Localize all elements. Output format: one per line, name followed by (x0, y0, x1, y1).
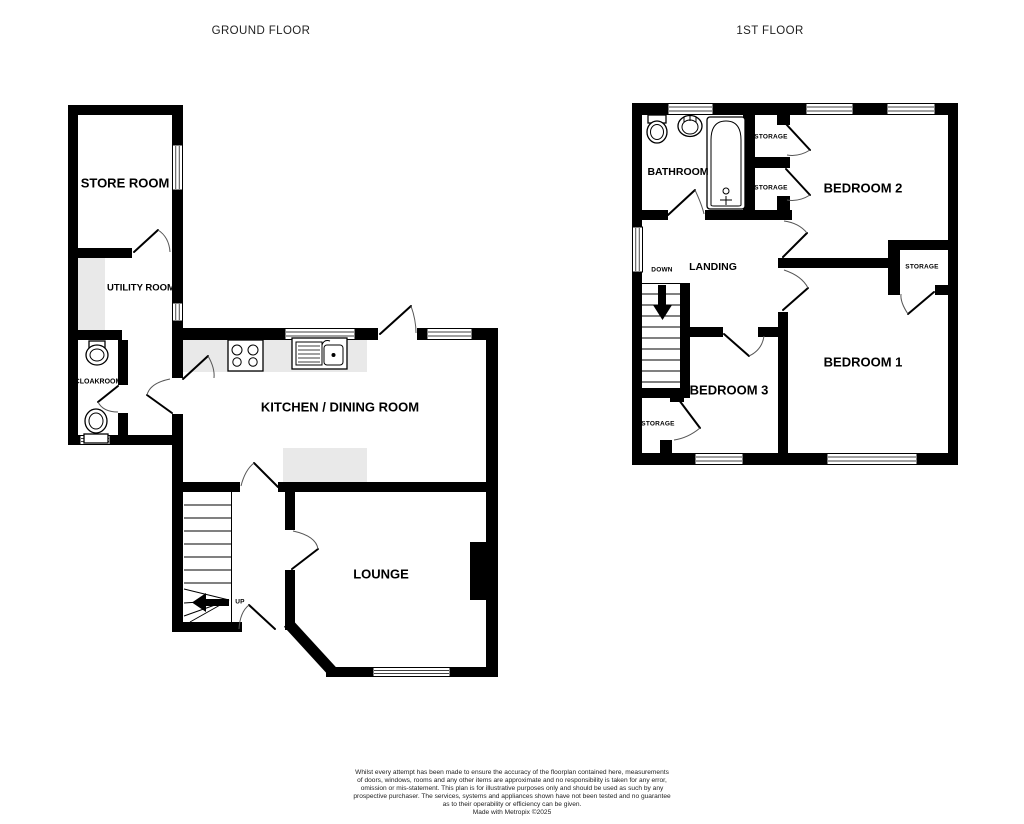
stairs-down-label: DOWN (651, 267, 672, 274)
utility-counter (78, 258, 105, 330)
window (695, 454, 743, 465)
bay-wall (288, 623, 332, 671)
room-label-bedroom-2: BEDROOM 2 (824, 181, 903, 196)
door-arc (786, 169, 810, 200)
storage-label-1: STORAGE (754, 134, 787, 141)
door-arc (380, 306, 416, 334)
door-arc (239, 605, 275, 629)
storage-label-bedroom-1: STORAGE (905, 264, 938, 271)
room-label-bathroom: BATHROOM (647, 166, 708, 178)
kitchen-sink-icon (292, 338, 347, 369)
disclaimer-line: as to their operability or efficiency ca… (353, 801, 670, 809)
ground-floor-title: GROUND FLOOR (212, 25, 311, 37)
floorplan-page: GROUND FLOOR 1ST FLOOR STORE ROOM UTILIT… (0, 0, 1024, 824)
door-arc (292, 531, 318, 569)
stove-icon (228, 340, 263, 371)
window (633, 227, 643, 272)
toilet-icon (84, 409, 108, 443)
cloakroom-basin-icon (86, 341, 108, 365)
disclaimer-text: Whilst every attempt has been made to en… (353, 769, 670, 817)
disclaimer-line: prospective purchaser. The services, sys… (353, 793, 670, 801)
toilet-icon (647, 115, 667, 143)
room-label-cloakroom: CLOAKROOM (75, 379, 122, 386)
room-label-landing: LANDING (689, 261, 737, 273)
room-label-store-room: STORE ROOM (81, 176, 170, 191)
door-arc (724, 334, 764, 356)
door-arc (98, 386, 118, 412)
down-arrow-icon (653, 285, 672, 320)
ground-floor-plan (68, 105, 498, 677)
room-label-bedroom-1: BEDROOM 1 (824, 355, 903, 370)
stairs-up-icon (184, 492, 232, 622)
window (173, 303, 183, 321)
first-floor-title: 1ST FLOOR (736, 25, 803, 37)
room-label-lounge: LOUNGE (353, 567, 409, 582)
disclaimer-line: of doors, windows, rooms and any other i… (353, 777, 670, 785)
storage-label-2: STORAGE (754, 185, 787, 192)
bathtub-icon (707, 117, 745, 209)
disclaimer-line: omission or mis-statement. This plan is … (353, 785, 670, 793)
window (668, 104, 713, 115)
room-label-utility-room: UTILITY ROOM (107, 283, 175, 294)
hearth-area (283, 448, 367, 482)
stairs-up-label: UP (235, 599, 244, 606)
window (427, 329, 472, 340)
window (806, 104, 853, 115)
door-arc (786, 124, 810, 155)
floor-plan-canvas (0, 0, 1024, 824)
first-floor-walls (632, 103, 958, 465)
door-arc (901, 292, 934, 314)
room-label-bedroom-3: BEDROOM 3 (690, 383, 769, 398)
door-arc (134, 230, 170, 252)
basin-icon (678, 115, 702, 137)
storage-label-bedroom-3: STORAGE (641, 421, 674, 428)
window (173, 145, 183, 190)
metropix-credit: Made with Metropix ©2025 (353, 809, 670, 817)
ground-floor-walls (68, 105, 498, 677)
window (887, 104, 935, 115)
door-arc (674, 400, 700, 440)
disclaimer-line: Whilst every attempt has been made to en… (353, 769, 670, 777)
stairs-down-icon (642, 284, 680, 383)
door-arc (783, 270, 808, 310)
fireplace (470, 542, 486, 600)
door-arc (668, 190, 704, 215)
door-arc (783, 221, 807, 257)
window (827, 454, 917, 465)
first-floor-plan (632, 103, 958, 465)
door-arc (147, 379, 172, 413)
window (373, 668, 450, 677)
door-arc (241, 463, 278, 487)
room-label-kitchen-dining: KITCHEN / DINING ROOM (261, 400, 419, 415)
